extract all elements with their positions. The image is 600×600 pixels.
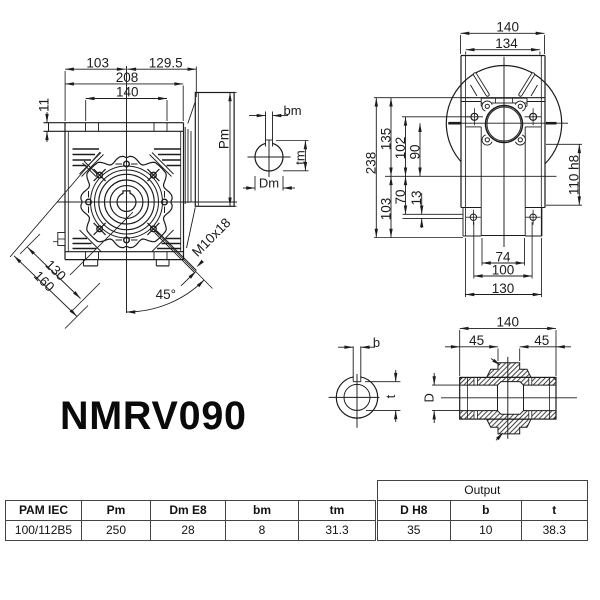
svg-text:103: 103 bbox=[378, 198, 393, 221]
svg-text:b: b bbox=[373, 335, 380, 350]
svg-text:140: 140 bbox=[496, 20, 519, 35]
svg-text:70: 70 bbox=[393, 189, 408, 204]
svg-text:NMRV090: NMRV090 bbox=[60, 394, 246, 438]
svg-text:bm: bm bbox=[283, 103, 301, 118]
svg-text:135: 135 bbox=[378, 128, 393, 151]
svg-text:130: 130 bbox=[492, 281, 515, 296]
svg-text:45: 45 bbox=[534, 333, 549, 348]
svg-text:90: 90 bbox=[407, 144, 422, 159]
svg-text:102: 102 bbox=[393, 137, 408, 160]
svg-text:134: 134 bbox=[495, 36, 518, 51]
svg-text:129.5: 129.5 bbox=[149, 55, 183, 70]
svg-text:D: D bbox=[421, 393, 436, 402]
svg-text:140: 140 bbox=[497, 315, 520, 330]
svg-text:11: 11 bbox=[37, 98, 52, 112]
svg-text:45: 45 bbox=[469, 333, 484, 348]
svg-text:Pm: Pm bbox=[217, 129, 232, 149]
svg-text:13: 13 bbox=[409, 190, 424, 205]
svg-text:238: 238 bbox=[364, 152, 379, 175]
svg-text:t: t bbox=[383, 394, 398, 398]
svg-text:110 h8: 110 h8 bbox=[566, 155, 581, 195]
svg-text:140: 140 bbox=[116, 85, 139, 100]
svg-text:tm: tm bbox=[293, 150, 308, 164]
svg-text:100: 100 bbox=[492, 262, 515, 277]
svg-text:45°: 45° bbox=[156, 287, 176, 302]
svg-text:Dm: Dm bbox=[259, 175, 279, 190]
svg-text:103: 103 bbox=[86, 55, 109, 70]
svg-text:208: 208 bbox=[116, 70, 139, 85]
